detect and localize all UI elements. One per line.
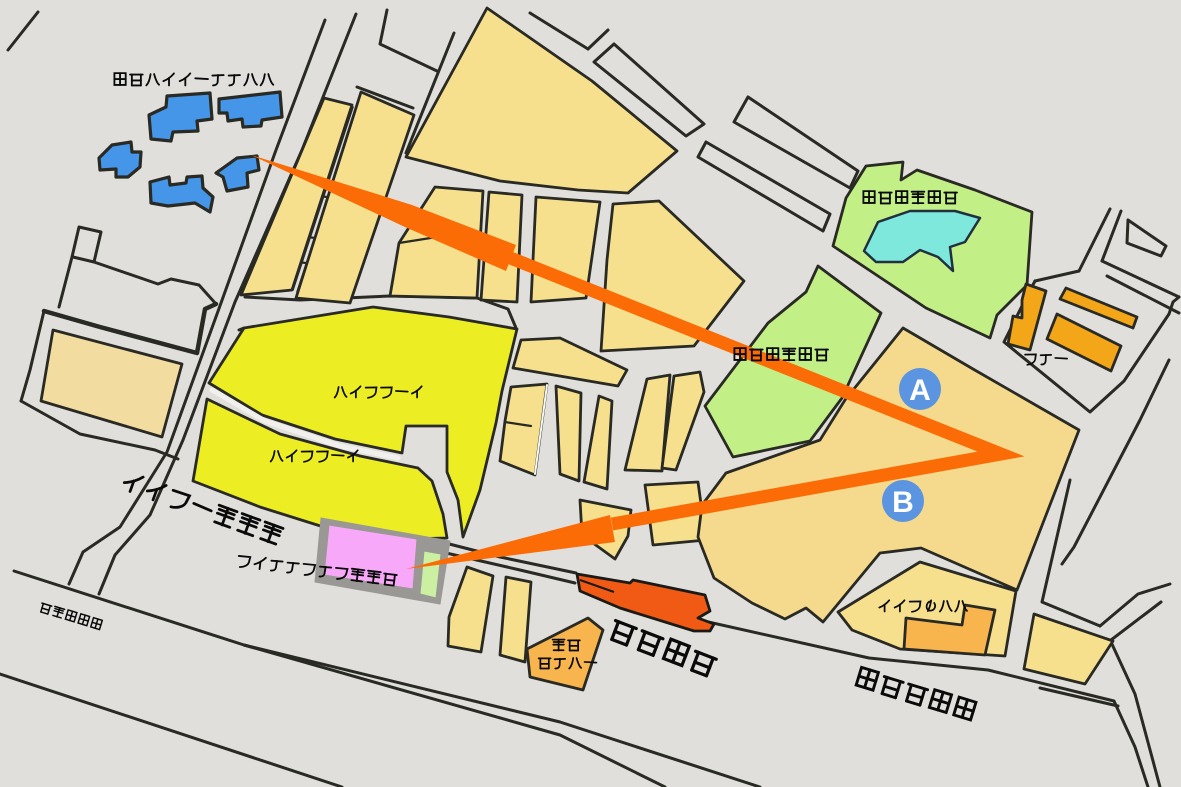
svg-text:B: B bbox=[892, 486, 914, 519]
svg-text:A: A bbox=[909, 374, 931, 407]
